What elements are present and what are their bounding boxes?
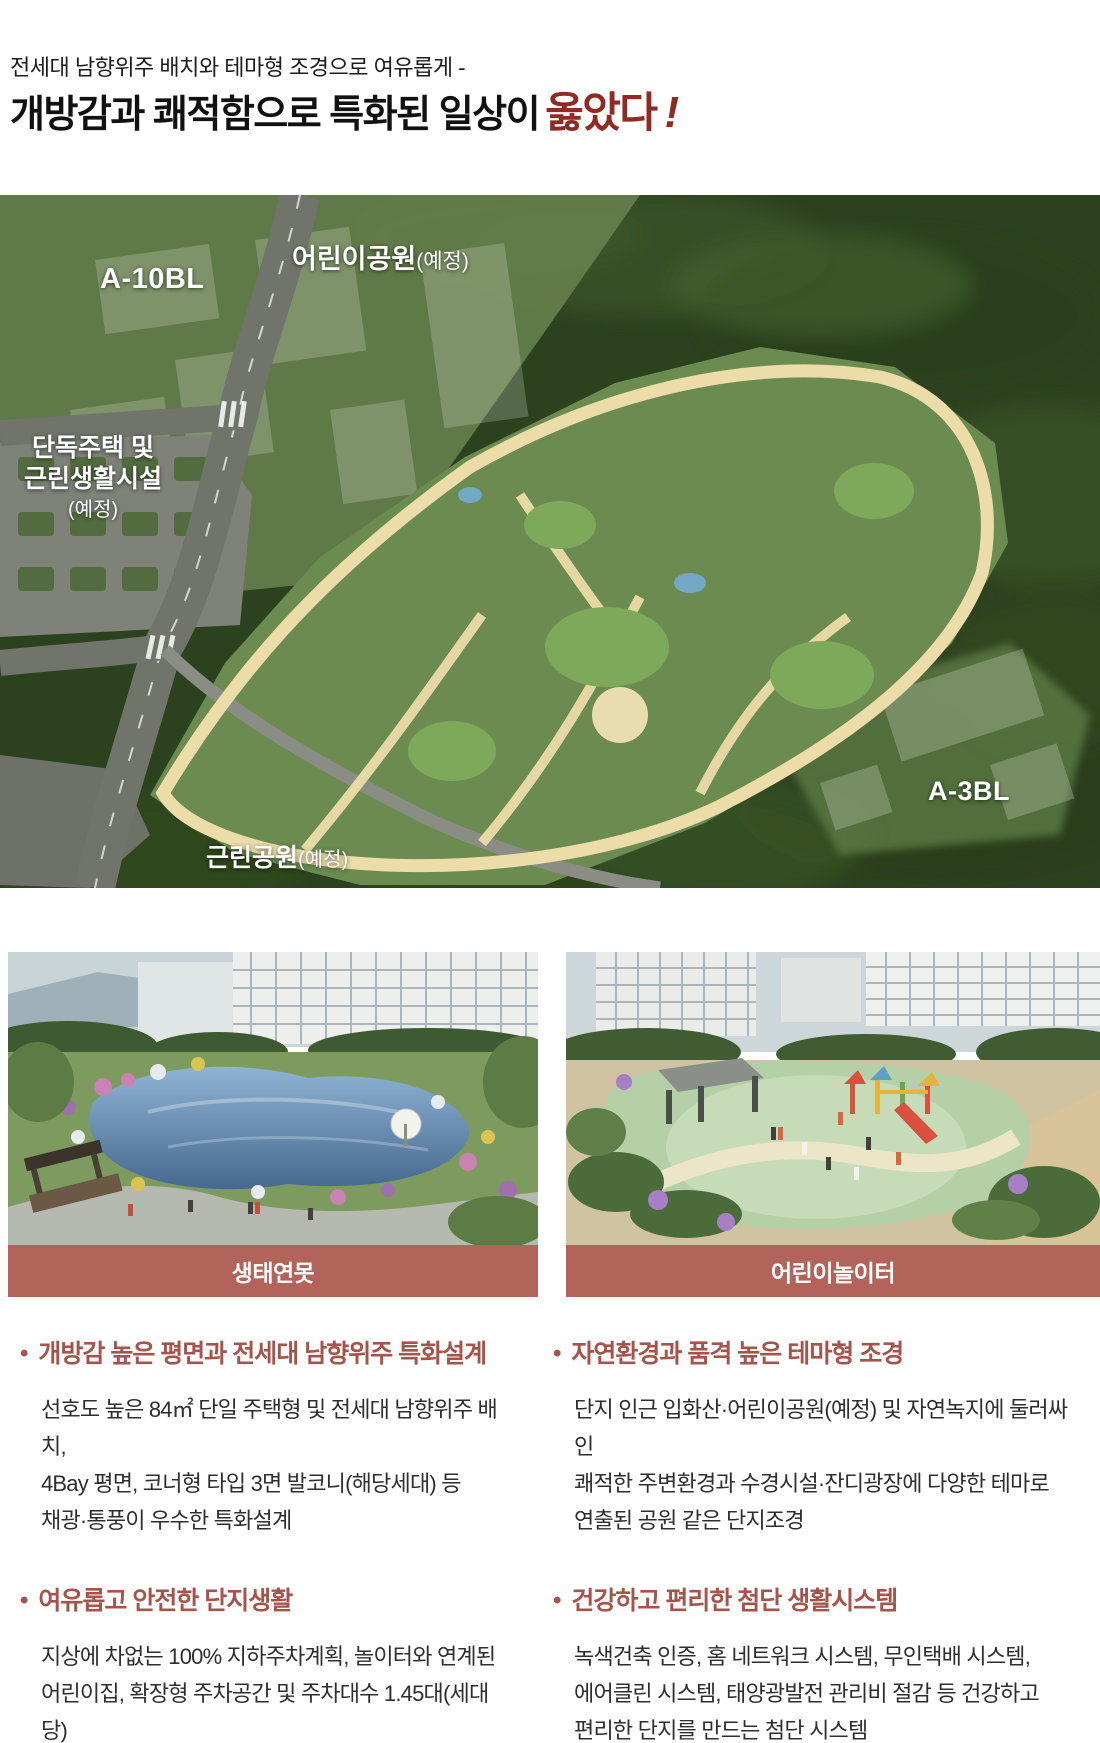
feature-sections: •개방감 높은 평면과 전세대 남향위주 특화설계 선호도 높은 84㎡ 단일 … xyxy=(0,1338,1100,1743)
feature-body: 선호도 높은 84㎡ 단일 주택형 및 전세대 남향위주 배치, 4Bay 평면… xyxy=(20,1391,513,1539)
feature-landscape: •자연환경과 품격 높은 테마형 조경 단지 인근 입화산·어린이공원(예정) … xyxy=(553,1338,1080,1539)
label-neighborhood-park: 근린공원(예정) xyxy=(206,838,348,874)
label-block-a10: A-10BL xyxy=(100,263,205,296)
site-plan-rendering: 어린이공원(예정) A-10BL 단독주택 및 근린생활시설 (예정) 근린공원… xyxy=(0,195,1100,888)
feature-design: •개방감 높은 평면과 전세대 남향위주 특화설계 선호도 높은 84㎡ 단일 … xyxy=(20,1338,513,1539)
feature-body: 녹색건축 인증, 홈 네트워크 시스템, 무인택배 시스템, 에어클린 시스템,… xyxy=(553,1638,1080,1743)
feature-title: •자연환경과 품격 높은 테마형 조경 xyxy=(553,1338,1080,1370)
label-block-a3: A-3BL xyxy=(928,776,1010,807)
bullet-icon: • xyxy=(553,1338,560,1370)
bullet-icon: • xyxy=(20,1338,27,1370)
bullet-icon: • xyxy=(553,1585,560,1617)
playground-art xyxy=(566,952,1100,1245)
feature-title: •개방감 높은 평면과 전세대 남향위주 특화설계 xyxy=(20,1338,513,1370)
title-exclamation: ! xyxy=(665,88,678,137)
promo-page: 전세대 남향위주 배치와 테마형 조경으로 여유롭게 - 개방감과 쾌적함으로 … xyxy=(0,0,1100,1743)
bullet-icon: • xyxy=(20,1585,27,1617)
title-red-accent: 옳았다 xyxy=(545,89,656,136)
caption-eco-pond: 생태연못 xyxy=(8,1245,538,1297)
headline-kicker: 전세대 남향위주 배치와 테마형 조경으로 여유롭게 - xyxy=(10,55,1100,81)
label-housing-area: 단독주택 및 근린생활시설 (예정) xyxy=(8,433,178,526)
headline: 전세대 남향위주 배치와 테마형 조경으로 여유롭게 - 개방감과 쾌적함으로 … xyxy=(0,0,1100,138)
feature-body: 단지 인근 입화산·어린이공원(예정) 및 자연녹지에 둘러싸인 쾌적한 주변환… xyxy=(553,1391,1080,1539)
photo-playground: 어린이놀이터 xyxy=(566,952,1100,1297)
feature-title: •여유롭고 안전한 단지생활 xyxy=(20,1585,513,1617)
feature-body: 지상에 차없는 100% 지하주차계획, 놀이터와 연계된 어린이집, 확장형 … xyxy=(20,1638,513,1743)
feature-systems: •건강하고 편리한 첨단 생활시스템 녹색건축 인증, 홈 네트워크 시스템, … xyxy=(553,1585,1080,1743)
caption-playground: 어린이놀이터 xyxy=(566,1245,1100,1297)
feature-title: •건강하고 편리한 첨단 생활시스템 xyxy=(553,1585,1080,1617)
label-children-park: 어린이공원(예정) xyxy=(292,237,469,276)
photo-eco-pond: 생태연못 xyxy=(8,952,538,1297)
photo-strip: 생태연못 xyxy=(0,952,1100,1297)
eco-pond-art xyxy=(8,952,538,1245)
page-title: 개방감과 쾌적함으로 특화된 일상이옳았다! xyxy=(10,90,1100,138)
title-black: 개방감과 쾌적함으로 특화된 일상이 xyxy=(10,94,539,136)
feature-safety: •여유롭고 안전한 단지생활 지상에 차없는 100% 지하주차계획, 놀이터와… xyxy=(20,1585,513,1743)
